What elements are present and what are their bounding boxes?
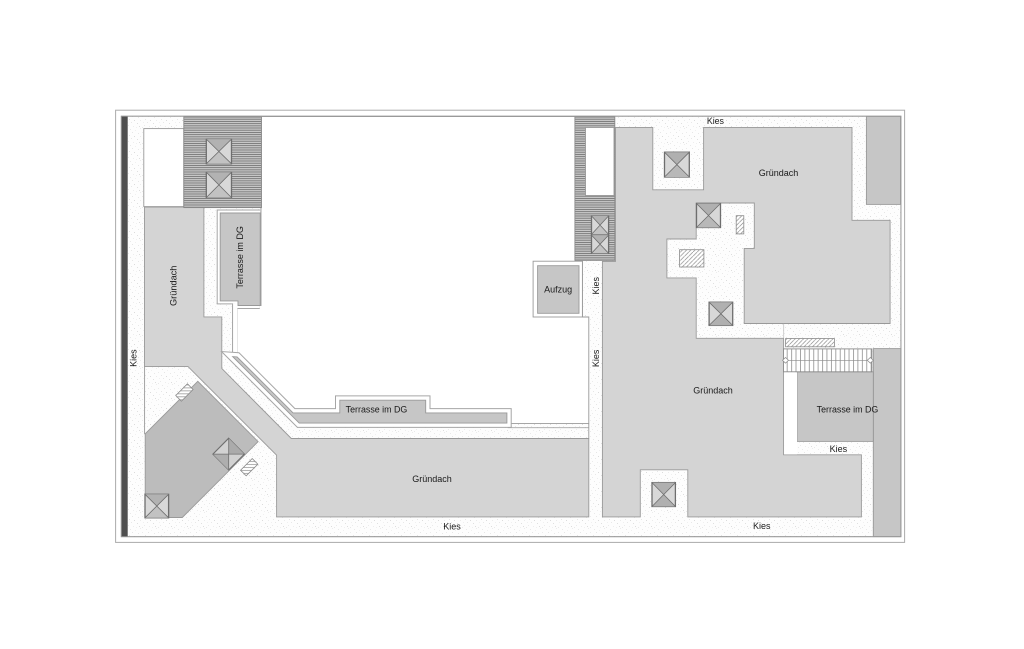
svg-text:Gründach: Gründach [168,266,178,306]
svg-text:Kies: Kies [707,116,725,126]
svg-text:Kies: Kies [443,522,461,532]
svg-text:Kies: Kies [591,276,601,294]
svg-text:Kies: Kies [753,521,771,531]
svg-text:Terrasse im DG: Terrasse im DG [235,226,245,289]
svg-text:Gründach: Gründach [693,386,733,396]
svg-text:Gründach: Gründach [759,168,799,178]
svg-text:Terrasse im DG: Terrasse im DG [817,404,879,414]
svg-text:Kies: Kies [591,349,601,367]
svg-text:Kies: Kies [830,444,848,454]
svg-text:Terrasse im DG: Terrasse im DG [346,405,408,415]
svg-text:Gründach: Gründach [412,474,452,484]
svg-text:Aufzug: Aufzug [544,285,572,295]
svg-text:Kies: Kies [129,349,139,367]
